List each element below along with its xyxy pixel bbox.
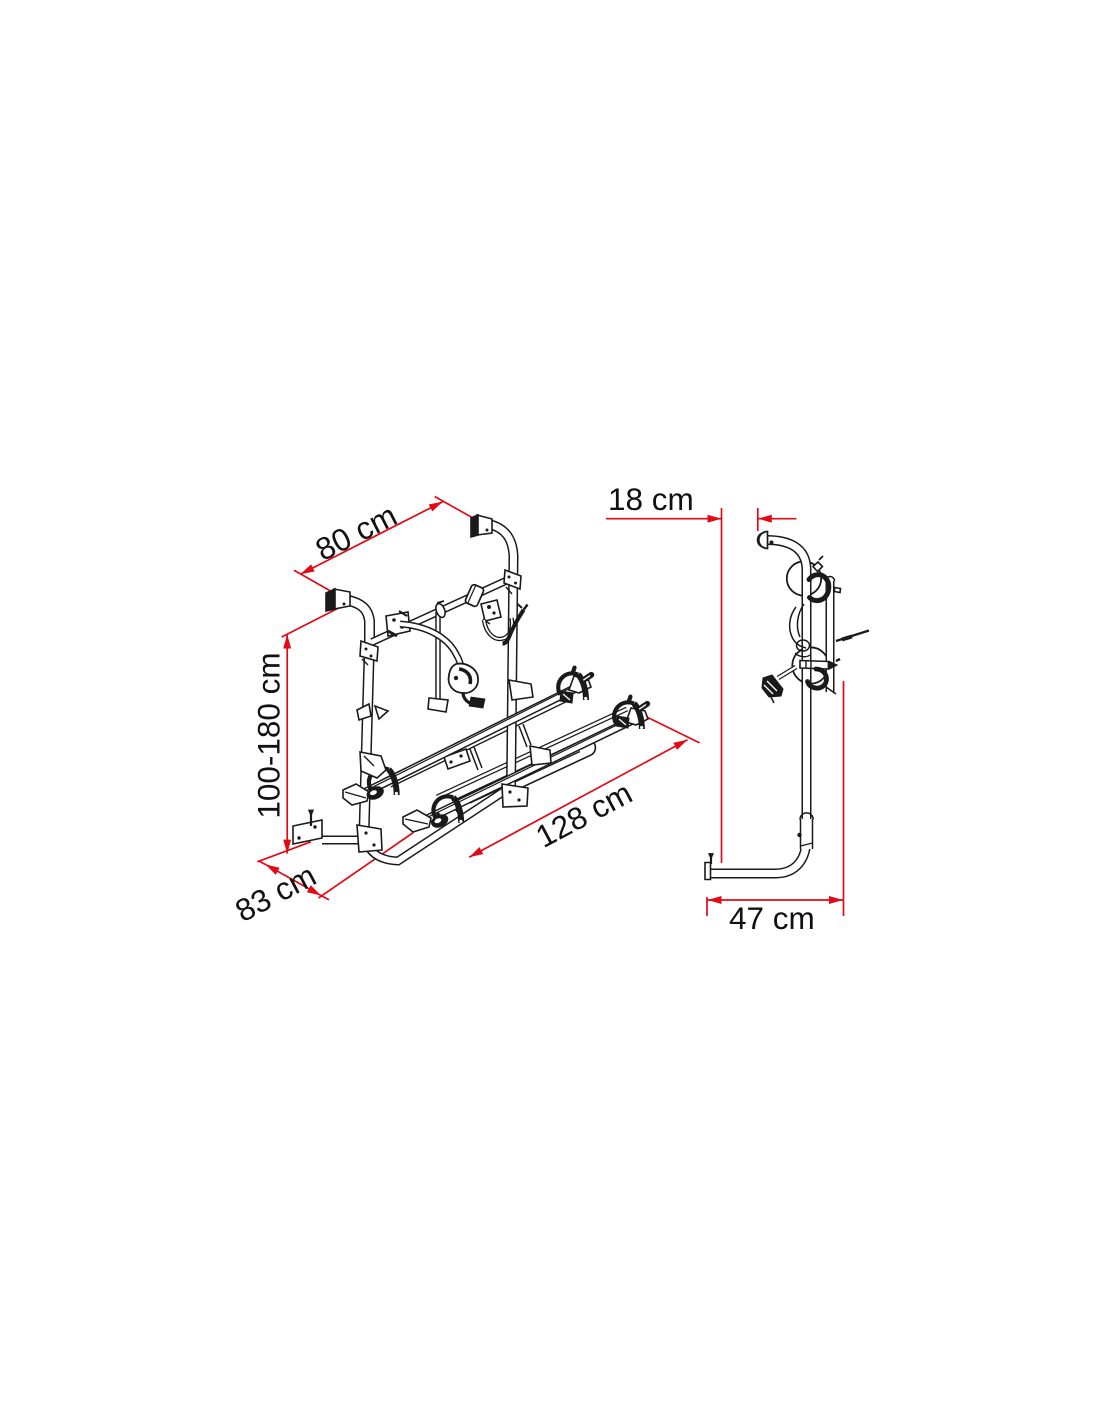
svg-text:128 cm: 128 cm — [530, 774, 638, 854]
svg-text:18 cm: 18 cm — [608, 481, 694, 517]
svg-text:47 cm: 47 cm — [729, 900, 815, 936]
svg-text:83 cm: 83 cm — [229, 857, 322, 929]
svg-text:100-180 cm: 100-180 cm — [250, 652, 286, 818]
svg-text:80 cm: 80 cm — [310, 497, 403, 568]
